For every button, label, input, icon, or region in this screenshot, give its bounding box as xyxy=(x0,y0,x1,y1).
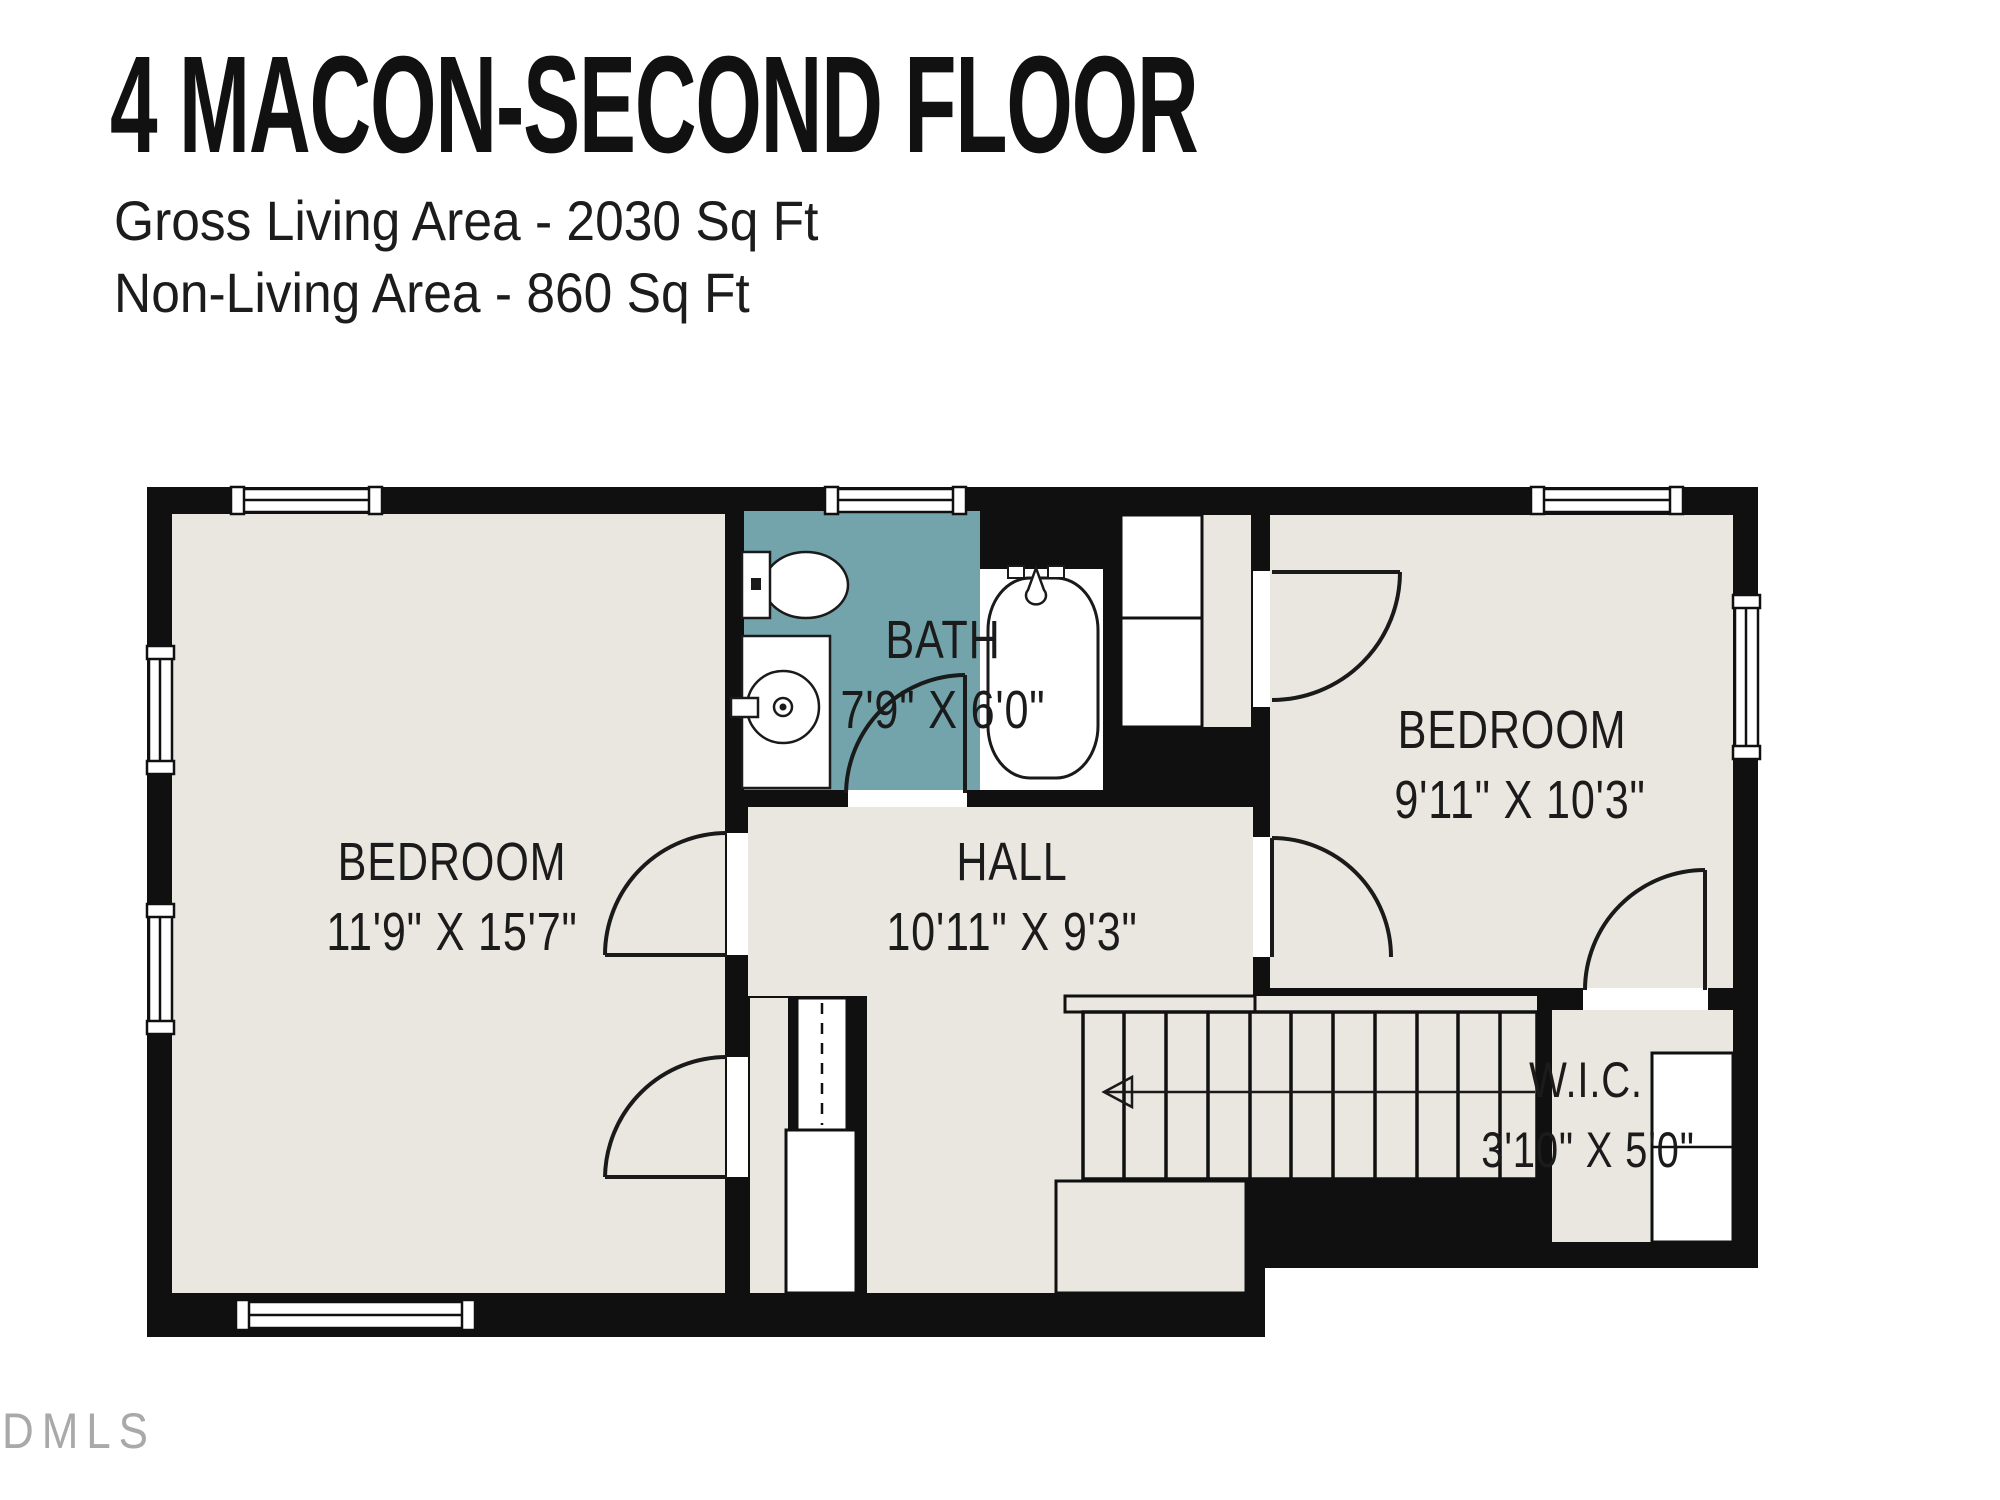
stair-platform xyxy=(1056,1181,1246,1293)
stair-treads xyxy=(1083,1012,1537,1179)
toilet xyxy=(742,552,848,618)
utility-box xyxy=(786,1130,856,1293)
bathtub xyxy=(988,566,1098,778)
window-left-upper xyxy=(147,646,174,774)
page-title: 4 MACON-SECOND FLOOR xyxy=(110,36,1197,174)
linen-closet-shelves xyxy=(1121,515,1202,727)
window-top-right xyxy=(1531,487,1683,514)
gross-living-area: Gross Living Area - 2030 Sq Ft xyxy=(114,188,818,253)
sink-vanity xyxy=(731,636,830,788)
stair-landing xyxy=(1065,996,1255,1012)
watermark: DMLS xyxy=(2,1402,156,1460)
non-living-area: Non-Living Area - 860 Sq Ft xyxy=(114,260,750,325)
staircase xyxy=(1065,996,1537,1179)
linen-closet-floor xyxy=(1203,515,1251,727)
nook-floor xyxy=(750,998,788,1293)
window-left-lower xyxy=(147,904,174,1034)
window-top-middle xyxy=(825,487,966,514)
window-top-left xyxy=(231,487,382,514)
window-right xyxy=(1733,595,1760,759)
chase-and-utility xyxy=(786,998,856,1293)
hall-extension-floor xyxy=(867,996,1083,1293)
window-bottom xyxy=(236,1300,475,1330)
